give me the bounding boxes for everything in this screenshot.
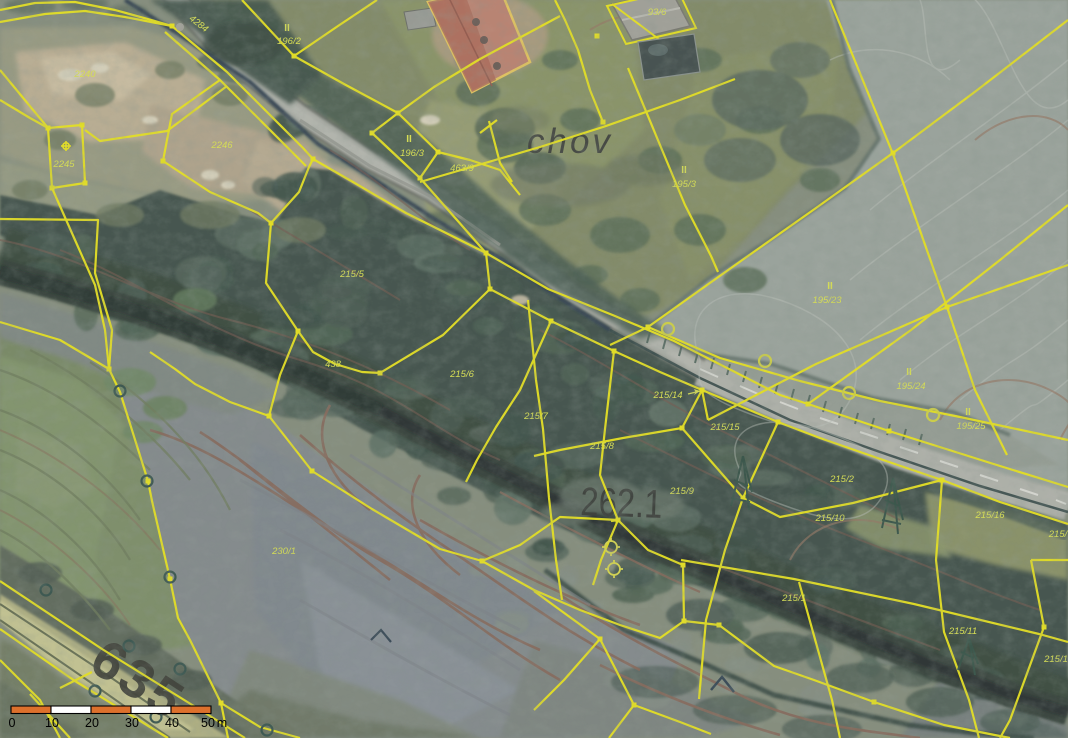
svg-text:0: 0 [9,716,16,730]
svg-text:10: 10 [45,716,59,730]
svg-text:30: 30 [125,716,139,730]
svg-text:50: 50 [201,716,215,730]
svg-text:40: 40 [165,716,179,730]
svg-text:20: 20 [85,716,99,730]
svg-text:m: m [217,716,227,730]
